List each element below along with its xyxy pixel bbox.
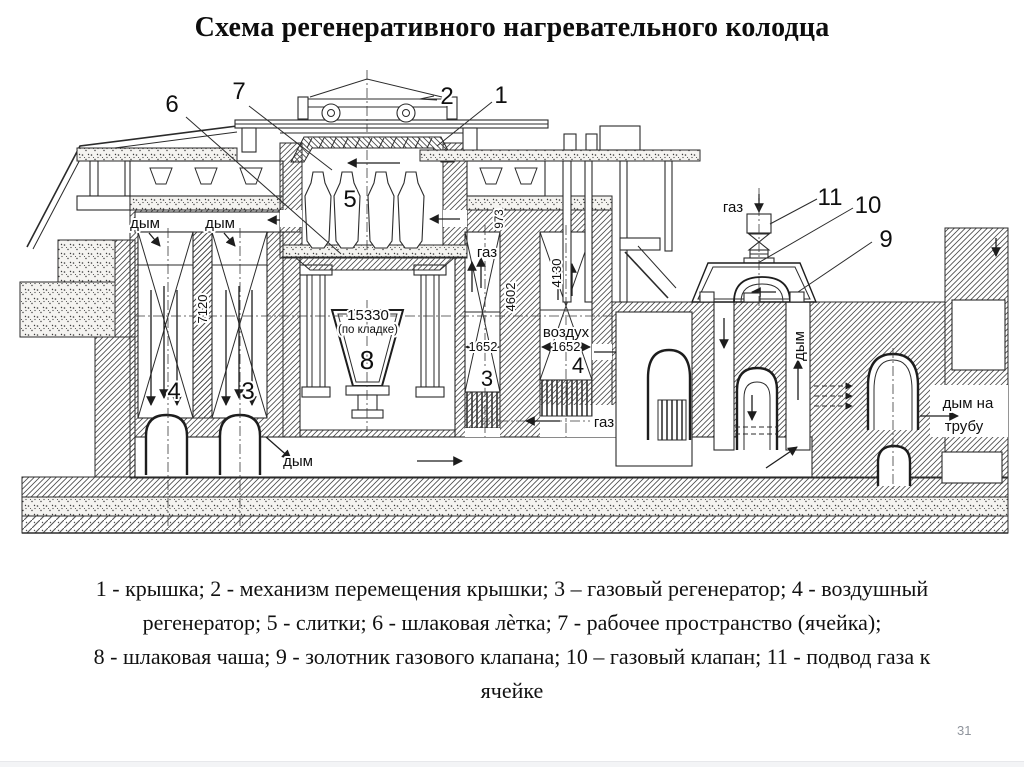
gas-label-bottom: газ bbox=[594, 414, 614, 431]
schematic-diagram: дым дым дым газ воздух газ газ дым дым н… bbox=[0, 0, 1024, 545]
callout-2: 2 bbox=[440, 83, 453, 110]
legend-line-1: 1 - крышка; 2 - механизм перемещения кры… bbox=[0, 572, 1024, 606]
smoke-label-left-2: дым bbox=[205, 215, 235, 232]
dim-7120: 7120 bbox=[195, 295, 210, 324]
callout-9: 9 bbox=[879, 226, 892, 253]
callout-3-right: 3 bbox=[481, 366, 493, 391]
smoke-label-left-1: дым bbox=[130, 215, 160, 232]
legend-line-2: регенератор; 5 - слитки; 6 - шлаковая лѐ… bbox=[0, 606, 1024, 640]
legend-line-3: 8 - шлаковая чаша; 9 - золотник газового… bbox=[0, 640, 1024, 674]
foundation-layers bbox=[22, 477, 1008, 533]
smoke-label-bottom: дым bbox=[283, 453, 313, 470]
gas-label-valve: газ bbox=[723, 199, 743, 216]
callout-1: 1 bbox=[494, 82, 507, 109]
dim-15330: 15330 bbox=[347, 307, 389, 324]
smoke-to-stack-label-1: дым на bbox=[943, 395, 994, 412]
callout-7: 7 bbox=[232, 78, 245, 105]
slide-title: Схема регенеративного нагревательного ко… bbox=[0, 12, 1024, 44]
dim-1652-air: 1652 bbox=[552, 339, 581, 354]
callout-8: 8 bbox=[360, 345, 374, 375]
callout-4-right: 4 bbox=[572, 353, 584, 378]
callout-10: 10 bbox=[855, 192, 882, 219]
diagram-legend: 1 - крышка; 2 - механизм перемещения кры… bbox=[0, 572, 1024, 708]
footer-bar bbox=[0, 761, 1024, 767]
callout-5: 5 bbox=[343, 186, 356, 213]
diagram-wrap: дым дым дым газ воздух газ газ дым дым н… bbox=[0, 0, 1024, 545]
dim-1652-gas: 1652 bbox=[469, 339, 498, 354]
gas-label-column: газ bbox=[477, 244, 497, 261]
page-number: 31 bbox=[957, 723, 971, 738]
callout-3-left: 3 bbox=[241, 378, 254, 405]
callout-4-left: 4 bbox=[167, 378, 180, 405]
slide: дым дым дым газ воздух газ газ дым дым н… bbox=[0, 0, 1024, 767]
dim-masonry-note: (по кладке) bbox=[338, 324, 398, 336]
smoke-label-vertical: дым bbox=[791, 331, 808, 361]
callout-11: 11 bbox=[818, 184, 843, 211]
dim-4130: 4130 bbox=[549, 259, 564, 288]
callout-6: 6 bbox=[165, 91, 178, 118]
smoke-to-stack-label-2: трубу bbox=[945, 418, 984, 435]
central-cellar bbox=[300, 258, 455, 437]
dim-4602: 4602 bbox=[503, 283, 518, 312]
dim-973: 973 bbox=[494, 209, 506, 228]
legend-line-4: ячейке bbox=[0, 674, 1024, 708]
